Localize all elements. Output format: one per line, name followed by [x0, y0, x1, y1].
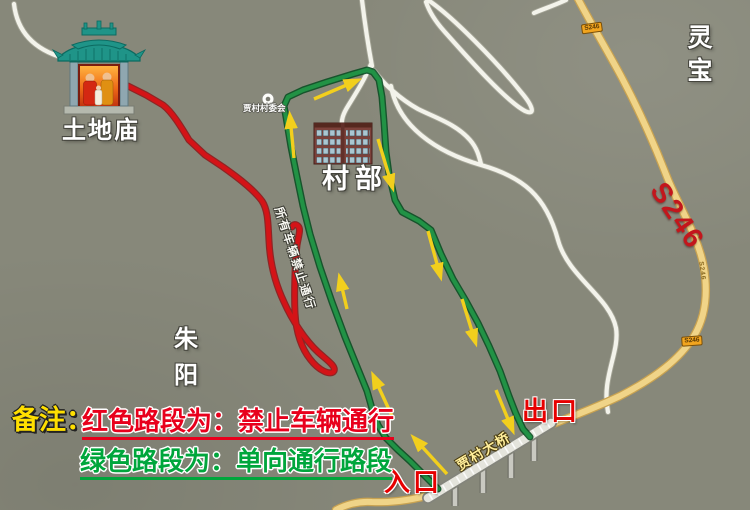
region-label-zhuyang: 朱阳 — [172, 322, 200, 394]
s246-shield-badge-bottom: S246 — [681, 335, 703, 346]
temple-label: 土地庙 — [62, 118, 140, 144]
legend-prefix: 备注： — [12, 406, 93, 436]
temple-icon — [53, 21, 145, 114]
legend-red-rule: 红色路段为：禁止车辆通行 — [82, 407, 394, 440]
village-office-building-icon — [314, 123, 372, 164]
red-forbidden-route — [128, 86, 334, 373]
village-office-label: 村部 — [322, 165, 388, 195]
route-notice-map: 土地庙 灵宝 朱阳 村部 贾村村委会 贾村大桥 入口 出口 所有车辆禁止通行 S… — [0, 0, 750, 510]
entrance-label: 入口 — [384, 468, 442, 497]
legend-green-rule: 绿色路段为：单向通行路段 — [80, 447, 392, 480]
poi-label: 贾村村委会 — [243, 104, 286, 113]
exit-label: 出口 — [522, 397, 580, 426]
region-label-lingbao: 灵宝 — [686, 22, 714, 88]
